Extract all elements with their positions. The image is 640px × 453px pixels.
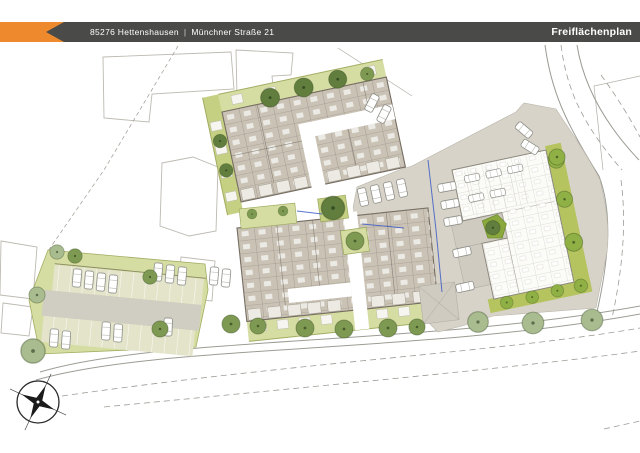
street: Münchner Straße 21 bbox=[191, 27, 274, 37]
site-plan-drawing bbox=[0, 0, 640, 453]
separator: | bbox=[179, 27, 192, 37]
plaza bbox=[419, 282, 459, 324]
title-bar: 85276 Hettenshausen|Münchner Straße 21 F… bbox=[46, 22, 640, 42]
plan-title: Freiflächenplan bbox=[551, 26, 632, 38]
site-plan-sheet: 85276 Hettenshausen|Münchner Straße 21 F… bbox=[0, 0, 640, 453]
zip-city: 85276 Hettenshausen bbox=[90, 27, 179, 37]
project-address: 85276 Hettenshausen|Münchner Straße 21 bbox=[90, 27, 274, 37]
compass-rose-icon bbox=[0, 361, 79, 443]
